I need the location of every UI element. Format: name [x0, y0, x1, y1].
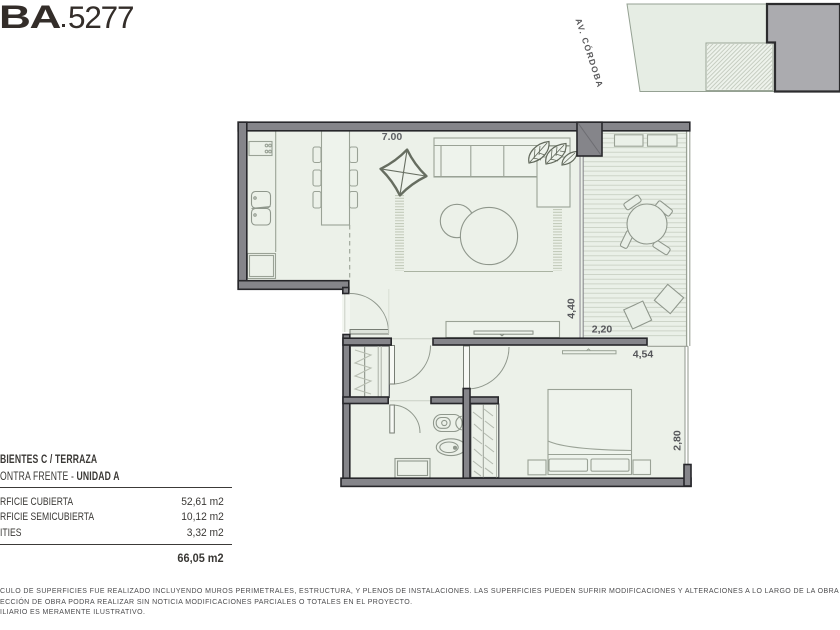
svg-text:4,54: 4,54 — [633, 349, 654, 361]
svg-text:2,20: 2,20 — [592, 324, 613, 336]
svg-text:4,40: 4,40 — [566, 298, 578, 319]
svg-text:2,80: 2,80 — [672, 430, 684, 451]
svg-text:7.00: 7.00 — [382, 131, 403, 143]
